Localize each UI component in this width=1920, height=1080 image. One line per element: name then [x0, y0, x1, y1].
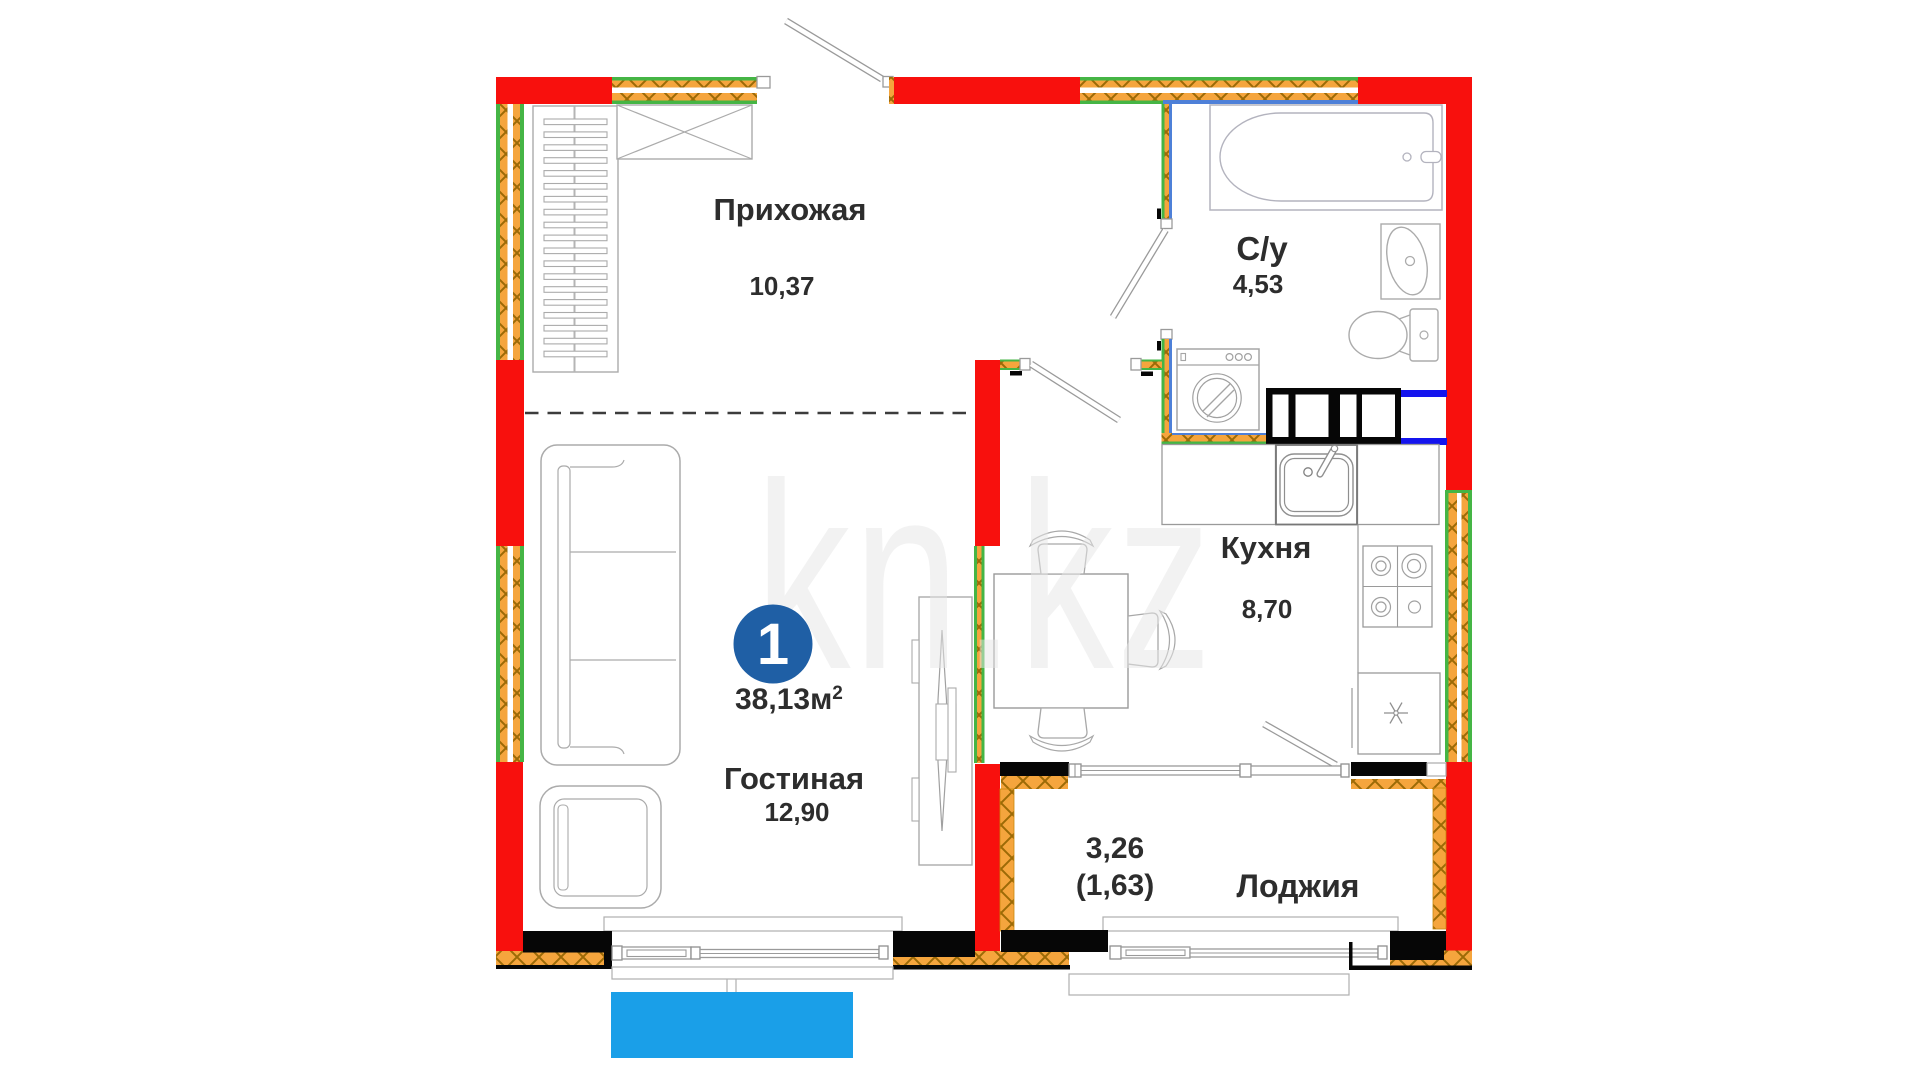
svg-text:1: 1: [757, 612, 789, 677]
svg-text:Лоджия: Лоджия: [1237, 868, 1360, 904]
svg-text:С/у: С/у: [1236, 230, 1288, 267]
svg-text:Гостиная: Гостиная: [724, 761, 864, 796]
svg-text:(1,63): (1,63): [1076, 869, 1154, 902]
svg-text:12,90: 12,90: [764, 797, 829, 827]
svg-text:Кухня: Кухня: [1221, 530, 1312, 565]
svg-text:Прихожая: Прихожая: [714, 192, 867, 227]
svg-text:4,53: 4,53: [1233, 269, 1284, 299]
svg-text:10,37: 10,37: [749, 271, 814, 301]
svg-text:kn.kz: kn.kz: [755, 428, 1215, 724]
svg-text:8,70: 8,70: [1242, 594, 1293, 624]
svg-text:38,13м2: 38,13м2: [735, 683, 843, 716]
svg-text:3,26: 3,26: [1086, 832, 1144, 865]
